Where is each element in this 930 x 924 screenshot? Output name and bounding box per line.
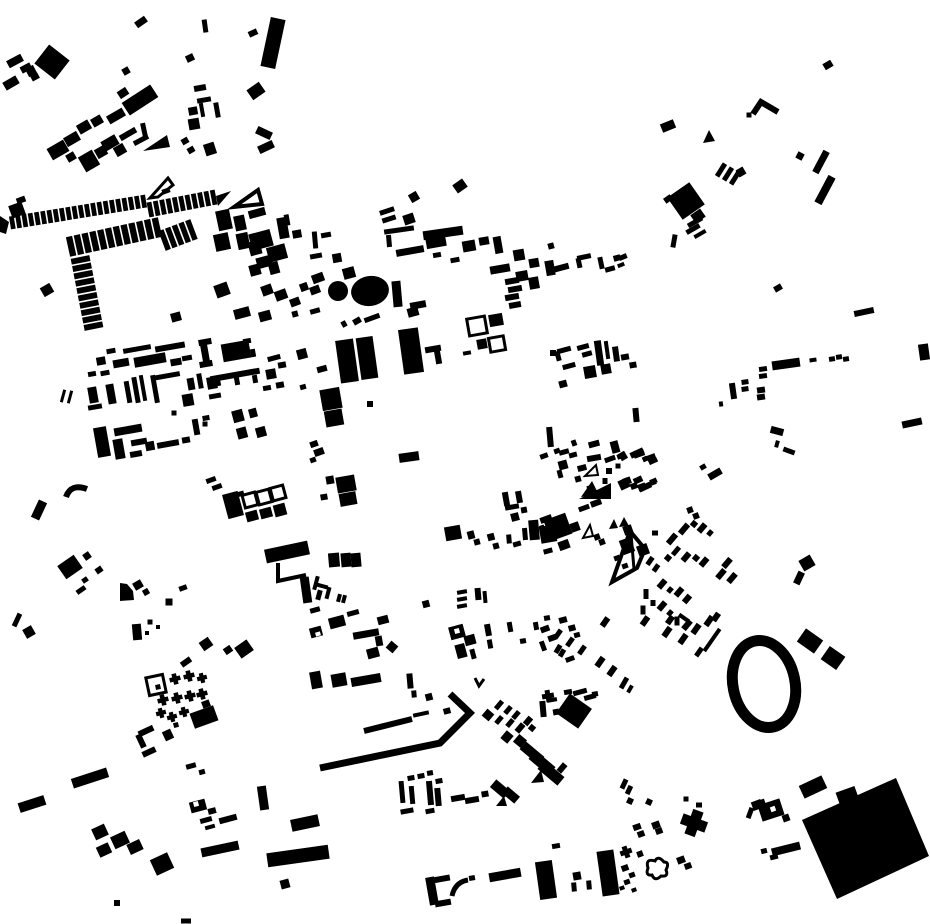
- map-shape: [509, 301, 522, 309]
- map-shape: [182, 355, 193, 362]
- map-shape: [382, 214, 397, 223]
- map-shape: [264, 541, 310, 564]
- map-shape: [494, 700, 504, 711]
- map-shape: [291, 310, 298, 317]
- map-shape: [422, 600, 431, 609]
- map-shape: [133, 352, 166, 367]
- map-shape: [746, 807, 754, 819]
- map-shape: [96, 356, 106, 365]
- map-shape: [386, 235, 392, 247]
- map-shape: [197, 96, 212, 103]
- map-shape: [918, 343, 930, 360]
- map-shape: [147, 190, 218, 218]
- map-shape: [629, 361, 637, 368]
- map-shape: [252, 375, 258, 384]
- map-shape: [34, 45, 69, 80]
- map-shape: [696, 803, 702, 808]
- map-shape: [812, 150, 829, 174]
- map-shape: [76, 119, 92, 134]
- map-shape: [656, 600, 667, 612]
- map-shape: [573, 632, 580, 638]
- map-shape: [482, 591, 487, 603]
- map-shape: [320, 493, 328, 500]
- map-shape: [489, 263, 510, 274]
- map-shape: [198, 338, 212, 346]
- map-shape: [451, 794, 466, 802]
- map-shape: [203, 422, 208, 427]
- map-shape: [94, 566, 103, 575]
- map-shape: [673, 586, 684, 598]
- map-shape: [467, 530, 476, 540]
- map-shape: [22, 625, 36, 639]
- map-shape: [150, 852, 174, 875]
- map-shape: [417, 773, 425, 779]
- map-shape: [313, 447, 325, 457]
- map-shape: [110, 831, 130, 850]
- map-shape: [587, 454, 602, 462]
- map-shape: [434, 350, 442, 365]
- map-shape: [178, 584, 187, 591]
- map-shape: [408, 191, 420, 203]
- map-shape: [336, 594, 342, 603]
- map-shape: [233, 306, 251, 320]
- map-shape: [316, 583, 329, 590]
- map-shape: [213, 232, 231, 252]
- map-shape: [12, 613, 22, 628]
- map-shape: [216, 191, 231, 206]
- map-shape: [347, 609, 360, 617]
- map-shape: [637, 830, 646, 838]
- map-shape: [328, 553, 340, 568]
- map-shape: [273, 503, 288, 518]
- map-shape: [502, 492, 510, 507]
- map-shape: [211, 483, 222, 491]
- map-shape: [621, 864, 630, 872]
- map-shape: [452, 178, 468, 193]
- map-shape: [267, 354, 281, 362]
- map-shape: [583, 365, 597, 379]
- map-shape: [508, 285, 523, 293]
- map-shape: [65, 151, 77, 162]
- map-shape: [772, 358, 801, 371]
- map-shape: [626, 685, 633, 694]
- map-shape: [234, 639, 254, 658]
- map-shape: [199, 103, 205, 117]
- map-shape: [192, 419, 201, 436]
- map-shape: [513, 249, 526, 262]
- map-shape: [248, 28, 259, 37]
- map-shape: [528, 724, 536, 732]
- map-shape: [320, 694, 470, 768]
- map-shape: [16, 196, 27, 205]
- map-shape: [332, 253, 342, 263]
- map-shape: [457, 589, 468, 595]
- map-shape: [202, 415, 210, 421]
- map-shape: [726, 572, 738, 584]
- map-shape: [799, 775, 828, 798]
- map-shape: [255, 426, 267, 438]
- map-shape: [579, 483, 611, 499]
- map-shape: [106, 348, 116, 354]
- map-shape: [692, 554, 700, 562]
- map-shape: [213, 281, 231, 298]
- map-shape: [170, 691, 183, 704]
- map-shape: [183, 689, 196, 702]
- map-shape: [757, 386, 766, 393]
- map-shape: [409, 786, 416, 804]
- map-shape: [300, 577, 313, 604]
- map-shape: [90, 114, 104, 127]
- map-shape: [2, 75, 19, 90]
- map-shape: [568, 452, 577, 459]
- map-shape: [105, 383, 116, 404]
- map-shape: [155, 707, 167, 719]
- map-shape: [91, 824, 109, 841]
- map-shape: [514, 722, 525, 734]
- map-shape: [260, 17, 285, 69]
- map-shape: [721, 557, 733, 569]
- map-shape: [741, 379, 749, 385]
- map-shape: [202, 19, 209, 33]
- map-shape: [141, 746, 156, 757]
- map-shape: [511, 710, 521, 720]
- map-shape: [117, 87, 130, 99]
- map-shape: [698, 556, 709, 568]
- map-shape: [640, 615, 651, 627]
- map-shape: [619, 677, 629, 690]
- map-shape: [40, 283, 55, 297]
- map-shape: [482, 709, 495, 722]
- map-shape: [18, 795, 47, 813]
- map-shape: [150, 178, 173, 198]
- map-shape: [564, 689, 573, 695]
- map-shape: [583, 525, 593, 538]
- map-shape: [190, 705, 219, 729]
- map-shape: [328, 615, 346, 630]
- map-shape: [565, 655, 575, 663]
- map-shape: [156, 693, 169, 706]
- map-shape: [386, 641, 399, 654]
- map-shape: [198, 769, 205, 775]
- map-shape: [292, 229, 302, 238]
- map-shape: [432, 874, 451, 883]
- map-shape: [836, 354, 843, 360]
- map-shape: [145, 631, 149, 635]
- map-shape: [577, 644, 587, 655]
- stadium-ring: [725, 635, 804, 734]
- map-shape: [623, 879, 630, 886]
- map-shape: [100, 370, 110, 376]
- map-shape: [152, 371, 180, 381]
- map-shape: [340, 320, 347, 328]
- map-shape: [312, 576, 319, 591]
- map-shape: [606, 468, 612, 474]
- map-shape: [182, 393, 195, 407]
- map-shape: [324, 409, 345, 428]
- map-shape: [155, 341, 186, 352]
- map-shape: [121, 66, 131, 76]
- map-shape: [161, 187, 170, 194]
- map-shape: [475, 678, 484, 686]
- map-shape: [645, 556, 654, 566]
- map-shape: [231, 409, 245, 423]
- map-shape: [829, 356, 836, 362]
- map-shape: [809, 358, 816, 363]
- map-shape: [274, 288, 289, 302]
- map-shape: [578, 504, 590, 512]
- map-shape: [114, 900, 120, 906]
- map-shape: [309, 671, 323, 690]
- map-shape: [114, 424, 143, 437]
- map-shape: [783, 447, 796, 456]
- map-shape: [180, 656, 192, 667]
- map-shape: [257, 140, 275, 154]
- map-shape: [488, 336, 505, 352]
- map-shape: [196, 672, 208, 684]
- map-shape: [528, 258, 539, 269]
- map-shape: [209, 392, 222, 399]
- map-shape: [188, 106, 198, 115]
- map-shape: [309, 440, 319, 448]
- map-shape: [636, 850, 644, 858]
- map-shape: [675, 617, 680, 626]
- map-shape: [660, 119, 676, 133]
- map-shape: [558, 616, 567, 624]
- map-shape: [588, 440, 600, 449]
- map-shape: [182, 436, 191, 443]
- map-shape: [321, 232, 332, 239]
- map-shape: [520, 638, 527, 644]
- map-shape: [309, 285, 321, 296]
- map-shape: [427, 770, 434, 776]
- map-shape: [132, 624, 142, 641]
- map-shape: [316, 365, 327, 373]
- map-shape: [543, 547, 553, 554]
- map-shape: [349, 273, 392, 309]
- map-shape: [619, 885, 625, 890]
- map-shape: [88, 403, 103, 410]
- map-shape: [484, 624, 492, 637]
- map-shape: [557, 539, 570, 551]
- map-shape: [205, 824, 216, 830]
- map-shape: [186, 146, 195, 155]
- map-shape: [268, 261, 281, 275]
- map-shape: [684, 862, 693, 870]
- map-shape: [71, 255, 104, 331]
- map-shape: [562, 362, 576, 370]
- map-shape: [142, 588, 150, 596]
- map-shape: [568, 624, 576, 632]
- map-shape: [200, 816, 213, 824]
- map-shape: [130, 450, 143, 458]
- map-shape: [544, 615, 551, 621]
- map-shape: [535, 860, 557, 900]
- map-shape: [665, 615, 675, 626]
- map-shape: [814, 175, 835, 205]
- map-shape: [234, 190, 262, 207]
- map-shape: [656, 578, 667, 590]
- map-shape: [610, 440, 621, 454]
- map-shape: [88, 371, 97, 377]
- map-shape: [290, 814, 320, 832]
- map-shape: [544, 260, 555, 276]
- map-shape: [505, 718, 515, 728]
- map-shape: [757, 393, 766, 400]
- map-shape: [661, 626, 672, 638]
- map-shape: [473, 538, 480, 545]
- map-shape: [686, 506, 694, 514]
- map-shape: [565, 636, 575, 647]
- map-shape: [753, 102, 778, 114]
- map-shape: [574, 475, 581, 482]
- map-shape: [81, 576, 89, 584]
- map-shape: [901, 417, 922, 428]
- map-shape: [496, 796, 507, 806]
- map-shape: [246, 82, 265, 100]
- map-shape: [821, 646, 846, 670]
- map-shape: [618, 844, 633, 859]
- map-shape: [503, 705, 513, 715]
- map-shape: [433, 252, 442, 258]
- map-shape: [597, 257, 604, 270]
- map-shape: [379, 206, 395, 215]
- map-shape: [145, 441, 155, 451]
- map-shape: [170, 311, 182, 322]
- map-shape: [703, 628, 722, 652]
- map-shape: [552, 843, 561, 849]
- map-shape: [684, 797, 689, 802]
- map-shape: [631, 887, 637, 892]
- map-shape: [521, 507, 528, 514]
- map-shape: [399, 781, 406, 803]
- map-shape: [243, 338, 252, 344]
- map-shape: [186, 762, 197, 769]
- map-shape: [798, 555, 815, 572]
- map-shape: [500, 730, 513, 743]
- map-shape: [364, 313, 381, 323]
- map-shape: [131, 438, 148, 447]
- map-shape: [195, 687, 208, 700]
- map-shape: [488, 868, 521, 882]
- map-shape: [330, 672, 347, 687]
- map-shape: [638, 482, 652, 493]
- map-shape: [557, 469, 564, 478]
- map-shape: [350, 673, 381, 687]
- map-shape: [335, 338, 359, 383]
- map-shape: [257, 785, 269, 810]
- map-shape: [621, 563, 628, 570]
- map-shape: [377, 615, 390, 626]
- map-shape: [215, 209, 233, 231]
- map-shape: [539, 640, 547, 651]
- map-shape: [600, 616, 611, 628]
- map-shape: [200, 841, 239, 858]
- map-shape: [664, 554, 672, 562]
- map-shape: [426, 781, 434, 805]
- map-shape: [690, 520, 698, 528]
- map-shape: [760, 848, 767, 854]
- map-shape: [398, 451, 419, 463]
- map-shape: [666, 586, 674, 594]
- map-shape: [488, 313, 504, 327]
- map-shape: [339, 491, 358, 507]
- map-shape: [671, 546, 681, 557]
- map-shape: [265, 368, 277, 380]
- map-shape: [435, 778, 443, 784]
- map-shape: [854, 307, 875, 317]
- map-shape: [666, 532, 678, 545]
- map-shape: [352, 316, 362, 325]
- map-shape: [6, 54, 24, 69]
- map-shape: [31, 499, 47, 520]
- map-shape: [492, 542, 499, 549]
- map-shape: [266, 845, 329, 867]
- map-shape: [166, 599, 173, 606]
- map-shape: [87, 386, 99, 403]
- map-shape: [592, 691, 599, 697]
- map-shape: [106, 108, 126, 125]
- map-shape: [481, 790, 489, 797]
- map-shape: [312, 231, 318, 248]
- map-shape: [454, 643, 467, 659]
- map-shape: [181, 919, 191, 924]
- map-shape: [594, 340, 604, 366]
- map-shape: [600, 363, 612, 375]
- map-shape: [319, 387, 342, 411]
- map-shape: [166, 711, 178, 723]
- map-shape: [236, 426, 249, 439]
- map-shape: [571, 439, 578, 446]
- map-shape: [213, 102, 221, 118]
- map-shape: [168, 672, 181, 685]
- map-shape: [276, 381, 285, 388]
- map-shape: [207, 807, 216, 815]
- map-shape: [822, 60, 833, 71]
- map-shape: [612, 346, 620, 362]
- map-shape: [680, 551, 691, 563]
- map-shape: [571, 882, 577, 891]
- map-shape: [507, 622, 514, 633]
- map-shape: [148, 620, 153, 625]
- map-shape: [425, 808, 435, 814]
- map-shape: [187, 377, 196, 390]
- map-shape: [582, 350, 593, 357]
- map-shape: [248, 408, 258, 419]
- map-shape: [234, 377, 240, 386]
- map-shape: [621, 353, 630, 360]
- map-shape: [774, 440, 780, 448]
- map-shape: [628, 872, 635, 879]
- map-shape: [310, 252, 323, 259]
- map-shape: [310, 606, 321, 613]
- map-shape: [573, 688, 588, 696]
- map-shape: [506, 534, 512, 543]
- map-shape: [515, 491, 523, 504]
- map-shape: [255, 126, 273, 140]
- map-shape: [632, 408, 639, 422]
- map-shape: [474, 588, 481, 600]
- map-shape: [219, 814, 238, 824]
- map-shape: [259, 507, 273, 520]
- map-shape: [487, 639, 493, 649]
- map-shape: [770, 854, 779, 861]
- map-shape: [677, 633, 688, 645]
- map-shape: [696, 522, 707, 534]
- map-shape: [647, 858, 668, 879]
- map-shape: [626, 797, 634, 805]
- map-shape: [328, 281, 348, 301]
- map-shape: [505, 293, 520, 301]
